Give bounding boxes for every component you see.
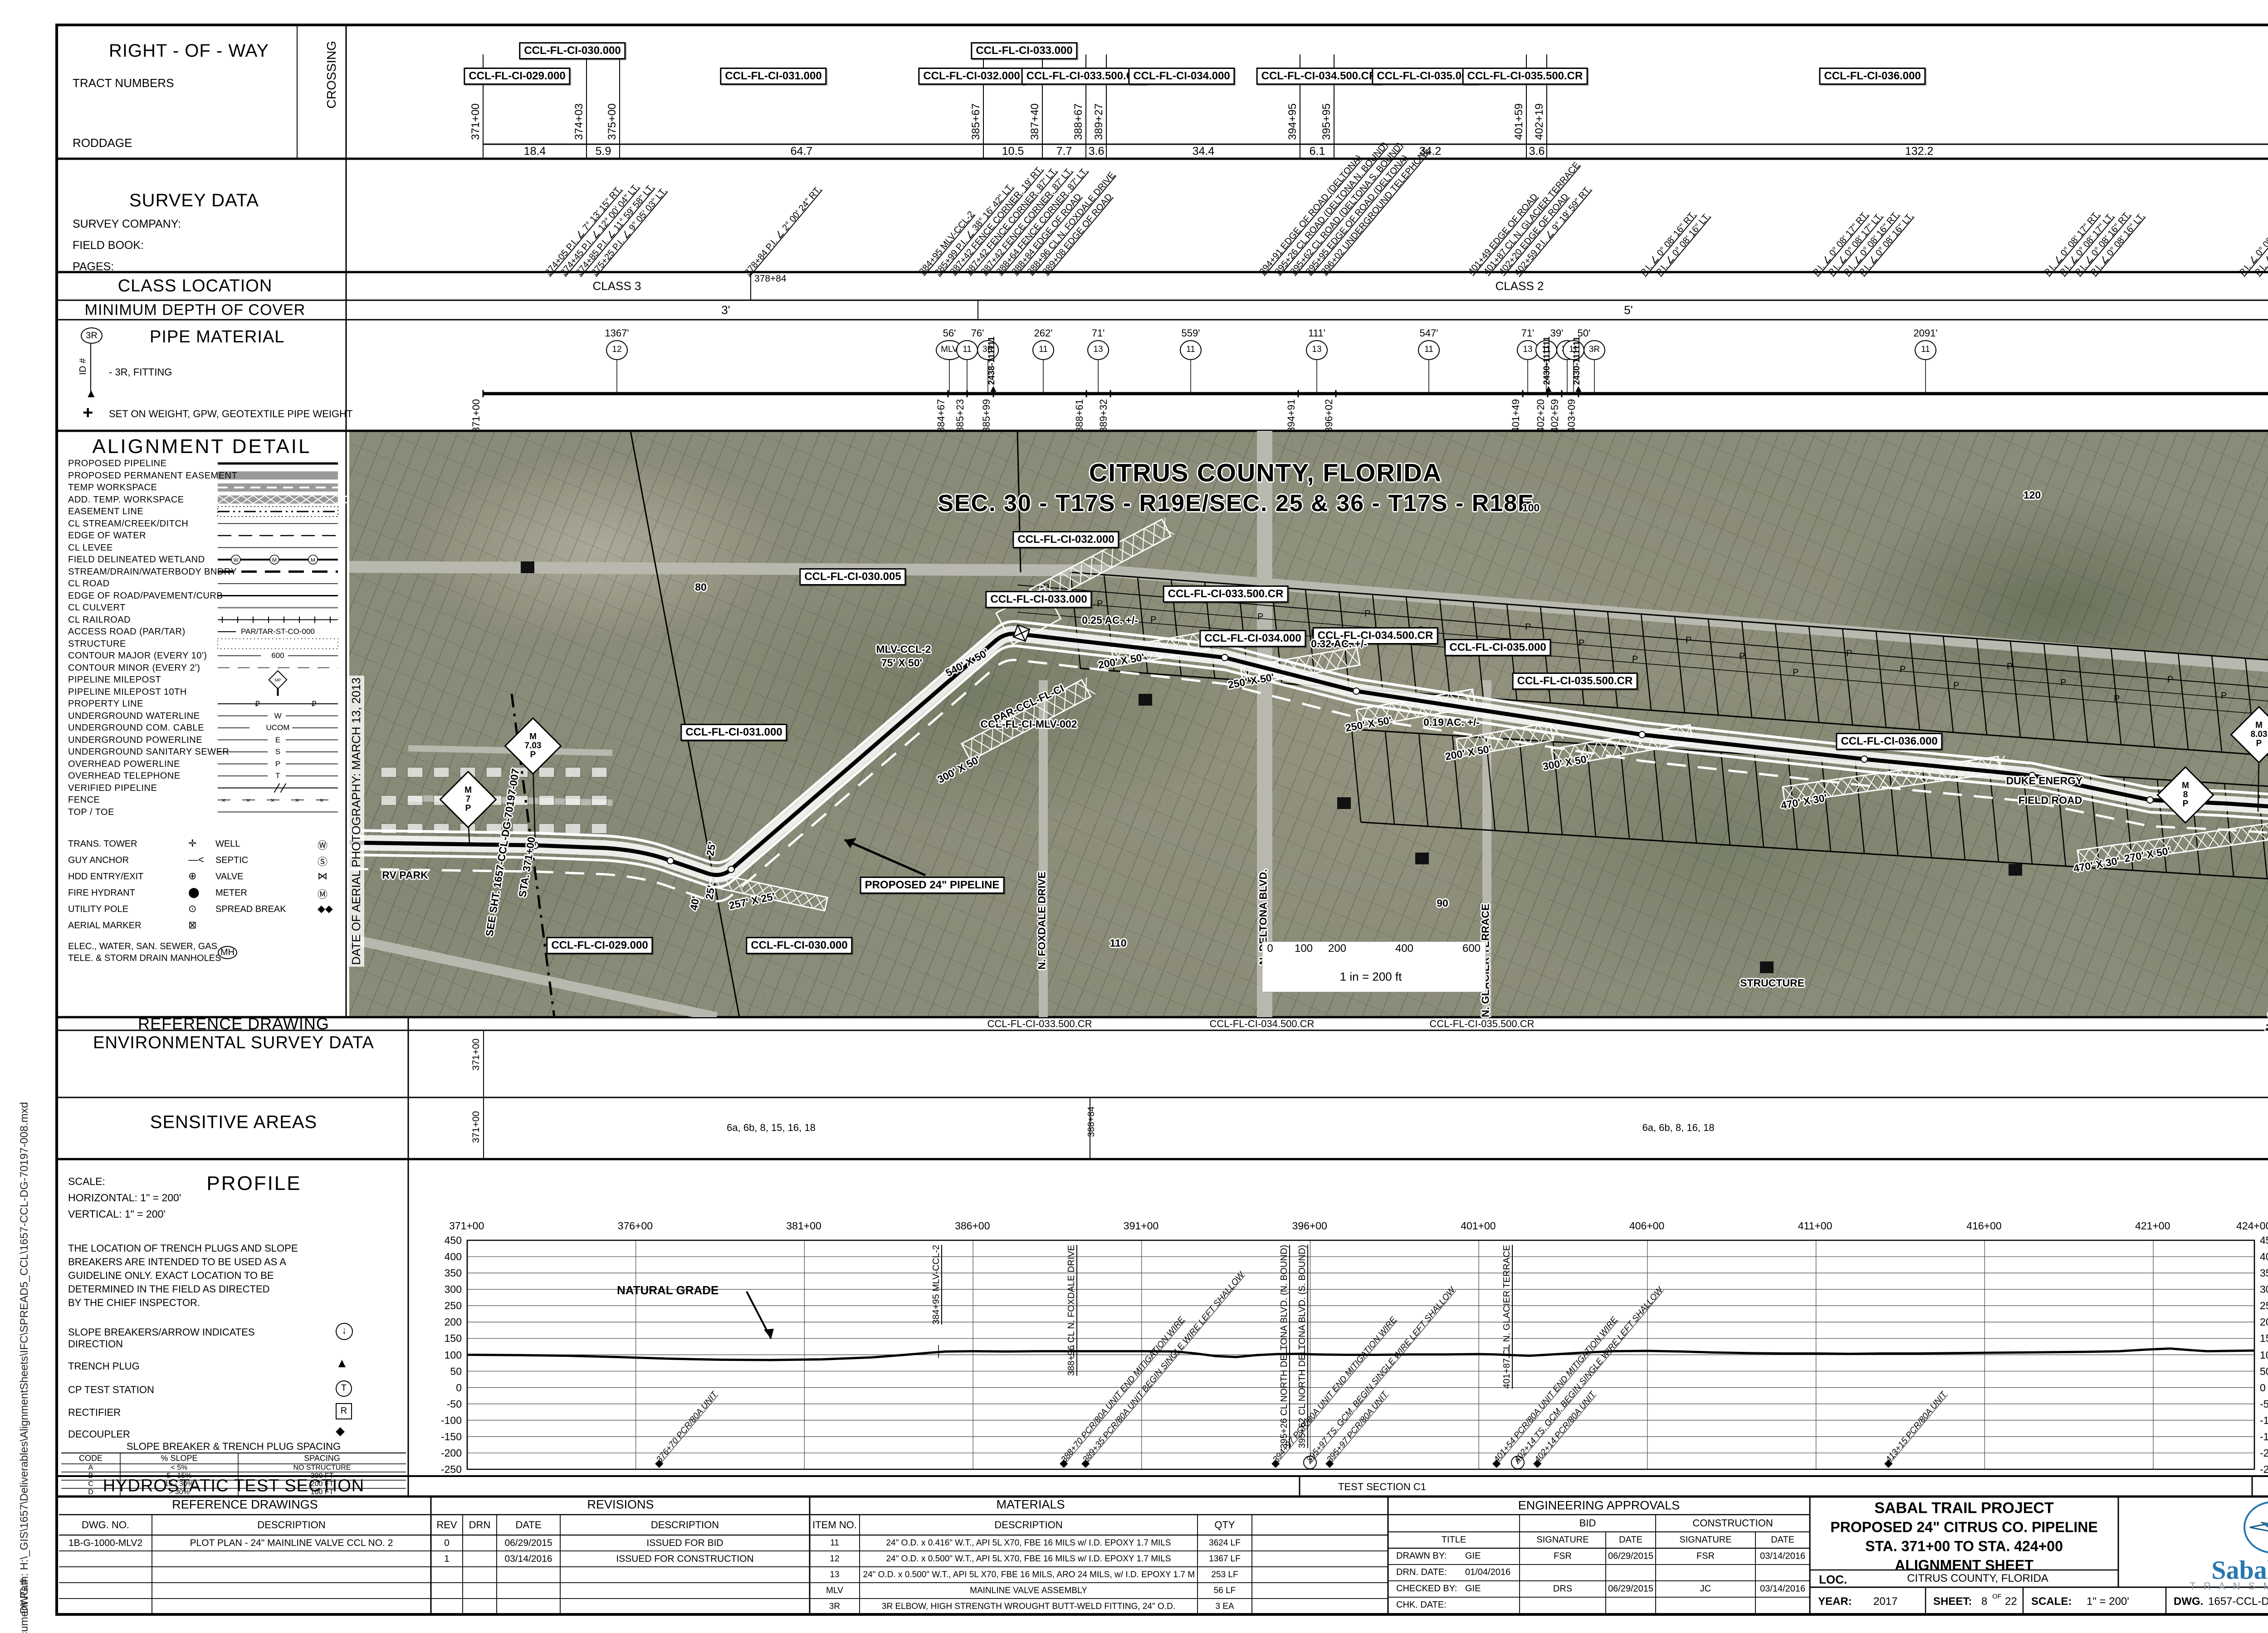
profile-elev-tick-left: -50 [432,1398,462,1410]
profile-note-line: GUIDELINE ONLY. EXACT LOCATION TO BE [68,1270,274,1282]
table-cell: 24" O.D. x 0.500" W.T., API 5L X70, FBE … [863,1570,1194,1580]
roddage-value: 18.4 [524,145,546,158]
depth-cover-value: 5' [1624,303,1633,317]
legend-item-label: PROPOSED PERMANENT EASEMENT [68,471,237,481]
pole-icon: ⊙ [188,903,196,915]
spacing-table-cell: 300 FT [311,1472,334,1480]
aerial-photo-date-note: DATE OF AERIAL PHOTOGRAPHY: MARCH 13, 20… [348,676,364,967]
pipe-item-id-circle: 11 [1915,340,1936,360]
table-cell: 3624 LF [1209,1538,1241,1548]
legend-manholes-label-2: TELE. & STORM DRAIN MANHOLES [68,953,221,964]
table-header: DATE [515,1519,541,1531]
pipe-item-id-circle: 12 [606,340,628,360]
map-tract-box: CCL-FL-CI-035.500.CR [1512,673,1638,690]
table-header: DESCRIPTION [257,1519,325,1531]
scale-value: 1" = 200' [2087,1595,2129,1608]
approvals-col-header: DATE [1771,1535,1794,1545]
reference-drawings-title: REFERENCE DRAWINGS [172,1498,318,1512]
profile-elev-tick-right: -100 [2260,1414,2268,1427]
spacing-table-header: % SLOPE [161,1454,197,1463]
pipe-item-id-circle: 11 [1180,340,1202,360]
profile-station-tick: 411+00 [1798,1220,1833,1232]
map-label: 0.25 AC. +/- [1082,614,1138,627]
profile-elev-tick-left: 400 [432,1251,462,1263]
septic-icon: Ⓢ [318,854,327,868]
legend-item-label: OVERHEAD POWERLINE [68,759,180,770]
pipe-legend-triangle: ▲ [85,386,97,400]
sensitive-areas-value: 6a, 6b, 8, 15, 16, 18 [727,1122,816,1134]
row-station-label: 388+67 [1072,103,1085,140]
table-cell: 24" O.D. x 0.500" W.T., API 5L X70, FBE … [886,1554,1171,1564]
profile-elev-tick-right: 350 [2260,1267,2268,1279]
row-label-tract-numbers: TRACT NUMBERS [73,76,174,90]
spacing-table-cell: A [88,1464,93,1472]
approvals-col-header: DATE [1619,1535,1642,1545]
map-scalebar-tick: 400 [1395,942,1413,955]
dwg-label: DWG. [2174,1595,2203,1608]
legend-item-label: ADD. TEMP. WORKSPACE [68,495,184,505]
profile-note-line: BY THE CHIEF INSPECTOR. [68,1297,200,1309]
legend-item-label: STREAM/DRAIN/WATERBODY BNDRY [68,567,237,577]
legend-symbol-label: UTILITY POLE [68,904,128,915]
profile-legend-label: RECTIFIER [68,1407,304,1419]
legend-item-note: UCOM [264,723,293,732]
profile-station-tick: 376+00 [618,1220,653,1232]
table-cell: ISSUED FOR BID [646,1538,723,1549]
profile-crossing-label: 401+87 CL N. GLACIER TERRACE [1502,1245,1512,1389]
map-tract-box: CCL-FL-CI-030.005 [799,568,906,585]
row-label-reference-drawing: REFERENCE DRAWING [138,1014,329,1033]
map-label: 75' X 50' [881,657,922,669]
approvals-row-label: DRAWN BY: [1396,1551,1447,1561]
sheet-of: OF [1992,1593,2002,1600]
legend-item-label: UNDERGROUND SANITARY SEWER [68,747,229,757]
legend-item-label: CL STREAM/CREEK/DITCH [68,519,188,529]
roddage-value: 6.1 [1310,145,1325,158]
legend-symbol-label: WELL [215,839,240,849]
row-label-pipe-material: PIPE MATERIAL [150,327,284,347]
tract-number-box: CCL-FL-CI-034.500.CR [1256,68,1382,85]
profile-elev-tick-left: 50 [432,1365,462,1378]
profile-legend-label: SLOPE BREAKERS/ARROW INDICATES DIRECTION [68,1326,304,1350]
map-label: 120 [2024,489,2041,502]
alignment-sheet: WMMMP₽₽××××× PPPPPPPPPPPPPPPPPPPPPPPPPP … [0,0,2268,1633]
pipe-item-length: 559' [1182,327,1200,339]
pipe-station-label: 394+91 [1286,399,1297,433]
sheet-no: 8 [1981,1595,1987,1608]
table-cell: 3R [829,1602,840,1612]
manhole-icon: MH [218,946,237,959]
table-header: QTY [1214,1519,1235,1531]
spacing-table-cell: NO STRUCTURE [293,1464,351,1472]
pipe-fitting-triangle: ▲ [988,383,998,395]
legend-symbol-label: METER [215,888,247,898]
profile-elev-tick-left: 350 [432,1267,462,1279]
table-header: DESCRIPTION [994,1519,1062,1531]
map-title-line2: SEC. 30 - T17S - R19E/SEC. 25 & 36 - T17… [938,490,1535,517]
profile-elev-tick-left: 0 [432,1382,462,1394]
materials-title: MATERIALS [996,1498,1065,1512]
map-label: 0.32 AC. +/- [1311,638,1367,650]
profile-elev-tick-left: -150 [432,1431,462,1443]
map-scalebar-tick: 600 [1462,942,1481,955]
map-tract-box: CCL-FL-CI-035.000 [1444,639,1551,656]
spacing-table-cell: D [88,1488,93,1497]
pipe-legend-fitting: - 3R, FITTING [109,366,172,378]
approvals-cell: DRS [1553,1584,1572,1594]
table-header: DWG. NO. [82,1519,129,1531]
pipe-station-label: 385+99 [981,399,992,433]
legend-item-label: STRUCTURE [68,639,126,649]
legend-item-label: EASEMENT LINE [68,507,143,517]
map-tract-box: PROPOSED 24" PIPELINE [860,877,1005,894]
pipe-station-label: 389+32 [1098,399,1110,433]
legend-symbol-label: SPREAD BREAK [215,904,286,915]
pipe-station-label: 385+23 [954,399,966,433]
map-label: MLV-CCL-2 [876,643,931,656]
table-cell: 11 [830,1538,839,1548]
row-station-label: 387+40 [1029,103,1041,140]
tower-icon: ✛ [188,838,196,849]
table-header: REV [436,1519,457,1531]
profile-note-line: THE LOCATION OF TRENCH PLUGS AND SLOPE [68,1243,298,1254]
legend-item-label: EDGE OF ROAD/PAVEMENT/CURB [68,591,223,601]
natural-grade-label: NATURAL GRADE [617,1283,719,1297]
pipe-item-length: 71' [1521,327,1535,339]
profile-elev-tick-right: 0 [2260,1382,2266,1394]
table-header: DESCRIPTION [651,1519,719,1531]
table-cell: 56 LF [1214,1586,1236,1596]
pipeline-milepost-text: M7.03P [514,727,552,765]
legend-manholes-label-1: ELEC., WATER, SAN. SEWER, GAS [68,941,217,952]
legend-item-label: EDGE OF WATER [68,531,146,541]
tract-number-box: CCL-FL-CI-029.000 [464,68,570,85]
legend-item-label: PROPERTY LINE [68,699,143,709]
approvals-row-label: CHK. DATE: [1396,1600,1447,1610]
row-station-label: 394+95 [1286,103,1299,140]
approvals-cell: 06/29/2015 [1608,1584,1653,1594]
table-cell: 12 [830,1554,839,1564]
profile-station-tick: 386+00 [955,1220,990,1232]
profile-station-tick: 381+00 [786,1220,821,1232]
well-icon: Ⓦ [318,838,327,852]
map-tract-box: CCL-FL-CI-034.000 [1199,630,1306,647]
profile-note-line: BREAKERS ARE INTENDED TO BE USED AS A [68,1256,286,1268]
approvals-col-header: TITLE [1442,1535,1466,1545]
table-cell: 1B-G-1000-MLV2 [68,1538,142,1549]
pipe-item-length: 262' [1034,327,1053,339]
loc-label: LOC. [1819,1573,1847,1587]
tract-number-box: CCL-FL-CI-032.000 [918,68,1025,85]
profile-elev-tick-left: -100 [432,1414,462,1427]
approvals-cell: 06/29/2015 [1608,1551,1653,1562]
row-station-label: 374+03 [573,103,586,140]
hdd-icon: ⊕ [188,870,196,882]
table-cell: 1367 LF [1209,1554,1241,1564]
profile-note-line: DETERMINED IN THE FIELD AS DIRECTED [68,1283,270,1295]
table-cell: PLOT PLAN - 24" MAINLINE VALVE CCL NO. 2 [190,1538,393,1549]
map-label: 25' [704,841,719,857]
legend-item-note: E [273,736,283,745]
map-tract-box: CCL-FL-CI-030.000 [746,937,852,954]
table-cell: MLV [826,1586,843,1596]
loc-value: CITRUS COUNTY, FLORIDA [1907,1572,2048,1585]
decoupler-icon: ◆ [336,1424,345,1438]
legend-title: ALIGNMENT DETAIL [93,435,312,458]
row-label-crossing: CROSSING [324,41,339,108]
spacing-table-cell: C [88,1480,93,1488]
approvals-cell: JC [1700,1584,1711,1594]
roddage-value: 132.2 [1905,145,1934,158]
profile-elev-tick-right: 250 [2260,1300,2268,1312]
reference-drawing-label: CCL-FL-CI-034.500.CR [1209,1018,1314,1030]
profile-station-tick: 424+00 [2236,1220,2268,1232]
approvals-cell: 03/14/2016 [1760,1584,1805,1594]
row-label-right-of-way: RIGHT - OF - WAY [109,41,269,61]
cp-test-station-icon: T [336,1380,352,1397]
pipe-fitting-id: 2430-111111 [1572,336,1582,385]
table-cell: 13 [830,1570,839,1580]
table-cell: 06/29/2015 [504,1538,552,1549]
legend-symbol-label: SEPTIC [215,855,248,866]
row-label-pages: PAGES: [73,260,114,273]
map-scalebar-tick: 0 [1267,942,1273,955]
row-station-label: 395+95 [1320,103,1333,140]
spacing-table-cell: < 5% [171,1464,188,1472]
profile-elev-tick-right: 300 [2260,1283,2268,1296]
roddage-value: 5.9 [596,145,611,158]
table-cell: 03/14/2016 [504,1554,552,1565]
profile-legend-label: TRENCH PLUG [68,1360,304,1372]
profile-elev-tick-left: -200 [432,1447,462,1459]
legend-symbol-label: VALVE [215,872,244,882]
profile-elev-tick-right: 450 [2260,1234,2268,1247]
profile-scale-horizontal: HORIZONTAL: 1" = 200' [68,1192,181,1204]
pipe-item-length: 56' [943,327,956,339]
pipeline-milepost-text: M7P [449,780,487,819]
row-station-label: 402+19 [1533,103,1546,140]
tract-number-box: CCL-FL-CI-036.000 [1819,68,1926,85]
roddage-value: 10.5 [1002,145,1024,158]
pipeline-milepost-text: M8.03P [2240,716,2268,754]
class-location-value: CLASS 3 [593,279,641,293]
legend-item-label: FENCE [68,795,100,805]
slope-breaker-icon: ↓ [336,1323,353,1340]
profile-elev-tick-right: -150 [2260,1431,2268,1443]
profile-crossing-label: 388+96 CL N. FOXDALE DRIVE [1066,1245,1077,1376]
profile-legend-label: DECOUPLER [68,1428,304,1440]
legend-item-label: CL CULVERT [68,603,126,613]
document-path: Document Path: H:\_GIS\1657\Deliverables… [18,1102,31,1633]
table-cell: 1 [444,1554,450,1565]
profile-scale-vertical: VERTICAL: 1" = 200' [68,1208,166,1220]
approvals-cell: 03/14/2016 [1760,1551,1805,1562]
test-section-label: TEST SECTION C1 [1338,1481,1426,1493]
legend-item-label: OVERHEAD TELEPHONE [68,771,181,781]
row-label-survey-company: SURVEY COMPANY: [73,218,181,231]
approvals-row-label: CHECKED BY: [1396,1584,1457,1594]
profile-elev-tick-left: 200 [432,1316,462,1328]
profile-elev-tick-right: 50 [2260,1365,2268,1378]
spacing-table-title: SLOPE BREAKER & TRENCH PLUG SPACING [127,1441,341,1453]
table-cell: 253 LF [1211,1570,1238,1580]
map-tract-box: CCL-FL-CI-032.000 [1012,531,1119,548]
pipe-station-label: 402+59 [1549,399,1561,433]
pipe-item-id-circle: 13 [1306,340,1328,360]
legend-symbol-label: TRANS. TOWER [68,839,137,849]
pipe-legend-id: ID # [78,358,88,375]
map-label: 0.19 AC. +/- [1423,717,1480,729]
title-block-line: PROPOSED 24" CITRUS CO. PIPELINE [1830,1519,2098,1536]
scale-label: SCALE: [2031,1595,2072,1608]
tract-number-box: CCL-FL-CI-034.000 [1128,68,1235,85]
profile-elev-tick-left: 300 [432,1283,462,1296]
legend-item-label: UNDERGROUND POWERLINE [68,735,202,746]
legend-item-label: PIPELINE MILEPOST 10TH [68,687,187,697]
pipe-item-id-circle: 3R [1584,340,1605,360]
reference-drawing-label: CCL-FL-CI-035.500.CR [1429,1018,1534,1030]
year-value: 2017 [1873,1595,1897,1608]
profile-elev-tick-right: 100 [2260,1349,2268,1361]
approvals-col-header: SIGNATURE [1679,1535,1731,1545]
row-label-survey-data: SURVEY DATA [129,190,259,211]
pipe-legend-weight: SET ON WEIGHT, GPW, GEOTEXTILE PIPE WEIG… [109,408,352,420]
sensitive-break-station: 388+84 [1086,1107,1097,1137]
pipe-item-id-circle: 13 [1087,340,1109,360]
profile-elev-tick-left: 450 [432,1234,462,1247]
guy-icon: —< [188,854,204,866]
profile-scale-label: SCALE: [68,1175,105,1188]
table-cell: 0 [444,1538,450,1549]
spread-break-icon: ◆◆ [318,903,333,915]
spacing-table-cell: 5 - 15% [166,1472,191,1480]
pipe-item-id-circle: 11 [1032,340,1054,360]
legend-item-label: TEMP WORKSPACE [68,483,157,493]
legend-item-note: S [273,747,283,756]
map-label: N. FOXDALE DRIVE [1036,872,1048,970]
legend-item-label: CONTOUR MAJOR (EVERY 10') [68,651,207,661]
spacing-table-cell: 200 FT [311,1480,334,1488]
table-cell: ISSUED FOR CONSTRUCTION [616,1554,753,1565]
pipe-legend-plus: + [83,403,93,423]
legend-item-label: ACCESS ROAD (PAR/TAR) [68,627,186,637]
profile-station-tick: 406+00 [1629,1220,1664,1232]
table-header: DRN [469,1519,491,1531]
roddage-value: 3.6 [1089,145,1105,158]
map-label: 90 [1437,897,1448,910]
title-block-line: SABAL TRAIL PROJECT [1874,1500,2053,1517]
legend-item-label: PROPOSED PIPELINE [68,458,166,469]
legend-symbol-label: GUY ANCHOR [68,855,129,866]
pipe-station-label: 384+67 [935,399,947,433]
row-station-label: 385+67 [970,103,982,140]
profile-elev-tick-left: 250 [432,1300,462,1312]
spacing-table-cell: 100 FT [311,1488,334,1497]
approvals-row-value: 01/04/2016 [1465,1567,1510,1578]
pipe-station-label: 402+20 [1535,399,1547,433]
approvals-cell: FSR [1554,1551,1572,1562]
env-station-label: 371+00 [471,1038,482,1071]
year-label: YEAR: [1818,1595,1852,1608]
profile-elev-tick-left: 150 [432,1332,462,1345]
hydrant-icon: ⬤ [188,887,200,898]
approvals-bid: BID [1579,1517,1596,1529]
tract-number-box: CCL-FL-CI-033.000 [971,42,1077,59]
sensitive-station-label: 371+00 [471,1111,482,1143]
meter-icon: Ⓜ [318,887,327,901]
reference-drawing-label: CCL-FL-CI-033.500.CR [987,1018,1092,1030]
legend-item-label: CL ROAD [68,579,110,589]
logo-sub: T R A N S M I S S I O N [2190,1580,2268,1592]
map-label: 25' [703,884,718,900]
pipe-station-label: 401+49 [1510,399,1522,433]
legend-item-label: FIELD DELINEATED WETLAND [68,555,205,565]
map-label: 100 [1522,502,1540,514]
map-scalebar-tick: 200 [1328,942,1346,955]
map-tract-box: CCL-FL-CI-033.500.CR [1163,585,1289,603]
legend-item-label: CL LEVEE [68,543,113,553]
aerial-icon: ⊠ [188,919,196,931]
row-label-environmental: ENVIRONMENTAL SURVEY DATA [93,1033,374,1053]
pipe-item-length: 71' [1092,327,1105,339]
legend-symbol-label: HDD ENTRY/EXIT [68,872,143,882]
legend-item-note: PAR/TAR-ST-CO-000 [238,627,318,636]
pipe-station-label: 371+00 [470,399,482,433]
map-label: DUKE ENERGY [2006,775,2083,787]
map-tract-box: CCL-FL-CI-036.000 [1836,733,1942,750]
legend-symbol-label: FIRE HYDRANT [68,888,135,898]
profile-elev-tick-right: -200 [2260,1447,2268,1459]
trench-plug-icon: ▲ [336,1356,348,1370]
legend-item-note: P [273,760,283,769]
map-label: STRUCTURE [1740,977,1804,990]
row-label-min-depth: MINIMUM DEPTH OF COVER [85,302,306,319]
legend-item-label: UNDERGROUND COM. CABLE [68,723,204,733]
row-station-label: 389+27 [1093,103,1105,140]
spacing-table-cell: B [88,1472,93,1480]
pipe-item-id-circle: 11 [956,340,978,360]
valve-icon: ⋈ [318,870,327,882]
pipe-legend-badge: 3R [81,327,103,344]
approvals-row-label: DRN. DATE: [1396,1567,1447,1578]
map-tract-box: CCL-FL-CI-033.000 [985,591,1092,608]
profile-title: PROFILE [206,1172,301,1195]
approvals-col-header: SIGNATURE [1536,1535,1589,1545]
row-label-field-book: FIELD BOOK: [73,239,144,252]
profile-legend-label: CP TEST STATION [68,1384,304,1396]
row-station-label: 375+00 [606,103,619,140]
tract-number-box: CCL-FL-CI-030.000 [519,42,626,59]
row-label-sensitive-areas: SENSITIVE AREAS [150,1112,317,1133]
roddage-value: 3.6 [1529,145,1545,158]
table-cell: 3 EA [1215,1602,1234,1612]
profile-elev-tick-right: -50 [2260,1398,2268,1410]
legend-item-note: W [271,712,284,721]
title-block-line: STA. 371+00 TO STA. 424+00 [1865,1538,2063,1555]
table-header: ITEM NO. [812,1519,857,1531]
map-tract-box: CCL-FL-CI-031.000 [680,724,787,741]
legend-item-label: VERIFIED PIPELINE [68,783,157,794]
class-location-value: CLASS 2 [1496,279,1544,293]
row-station-label: 401+59 [1513,103,1525,140]
pipe-fitting-triangle: ▲ [1574,383,1584,395]
map-label: 80 [695,581,707,594]
row-label-class-location: CLASS LOCATION [118,277,273,296]
profile-elev-tick-right: 200 [2260,1316,2268,1328]
dwg-no: 1657-CCL-DG-70197-008 [2208,1595,2268,1608]
legend-symbol-label: AERIAL MARKER [68,921,142,931]
legend-item-label: PIPELINE MILEPOST [68,675,161,685]
